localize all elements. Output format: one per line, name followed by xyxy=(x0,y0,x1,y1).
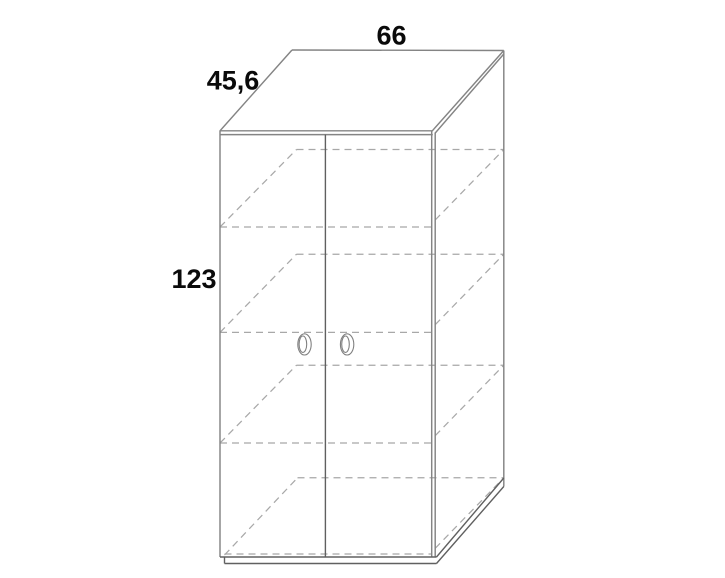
svg-text:66: 66 xyxy=(376,21,406,51)
svg-text:123: 123 xyxy=(171,264,216,294)
svg-text:45,6: 45,6 xyxy=(207,66,260,96)
